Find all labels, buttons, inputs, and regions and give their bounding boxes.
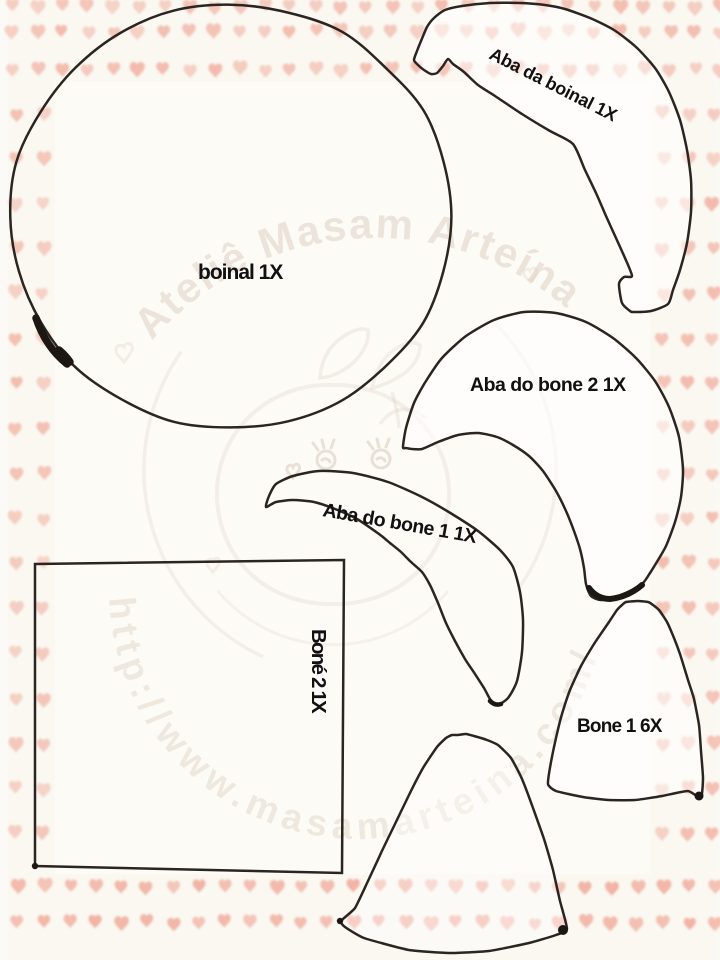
svg-text:Boné 2 1X: Boné 2 1X <box>307 629 330 714</box>
svg-text:Bone 1 6X: Bone 1 6X <box>577 716 663 737</box>
svg-text:boinal 1X: boinal 1X <box>198 261 283 284</box>
svg-text:Aba do bone 2 1X: Aba do bone 2 1X <box>470 374 626 396</box>
